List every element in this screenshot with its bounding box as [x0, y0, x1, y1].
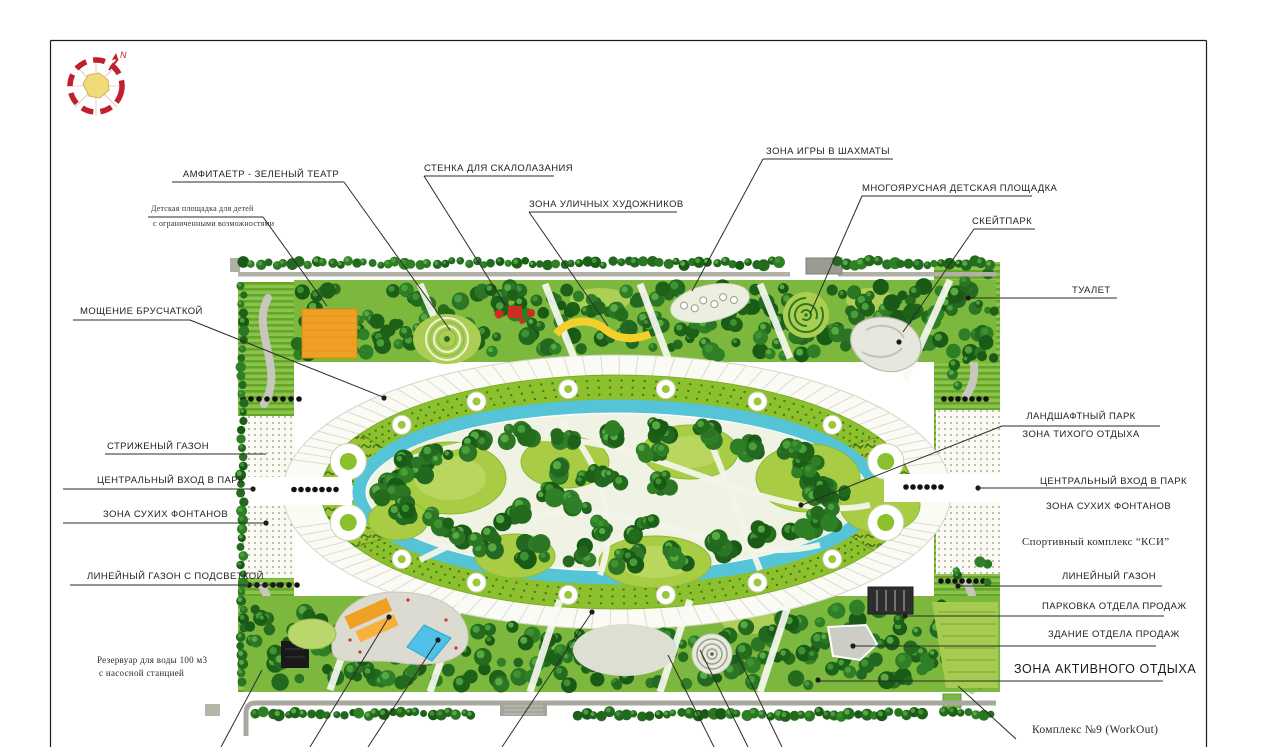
- label-trimmed-lawn: СТРИЖЕНЫЙ ГАЗОН: [107, 441, 209, 452]
- label-parking: ПАРКОВКА ОТДЕЛА ПРОДАЖ: [1042, 601, 1187, 612]
- label-paving: МОЩЕНИЕ БРУСЧАТКОЙ: [80, 306, 203, 317]
- label-reservoir-1: Резервуар для воды 100 м3: [97, 655, 207, 665]
- label-amphitheater: АМФИТАЕТР - ЗЕЛЕНЫЙ ТЕАТР: [178, 169, 344, 180]
- label-sport-complex: Спортивный комплекс “КСИ”: [1022, 536, 1170, 548]
- label-central-entrance-left: ЦЕНТРАЛЬНЫЙ ВХОД В ПАРК: [97, 475, 244, 486]
- label-active-recreation: ЗОНА АКТИВНОГО ОТДЫХА: [1014, 664, 1196, 675]
- label-landscape-park-2: ЗОНА ТИХОГО ОТДЫХА: [1001, 429, 1161, 440]
- label-toilet: ТУАЛЕТ: [1072, 285, 1111, 296]
- label-central-entrance-right: ЦЕНТРАЛЬНЫЙ ВХОД В ПАРК: [1040, 476, 1187, 487]
- label-linear-lawn-right: ЛИНЕЙНЫЙ ГАЗОН: [1062, 571, 1156, 582]
- green-theater-amphitheater: [413, 314, 481, 364]
- label-workout: Комплекс №9 (WorkOut): [1032, 724, 1158, 736]
- paved-square-orange: [302, 309, 357, 358]
- label-multilevel-playground: МНОГОЯРУСНАЯ ДЕТСКАЯ ПЛОЩАДКА: [862, 183, 1032, 194]
- label-street-artists: ЗОНА УЛИЧНЫХ ХУДОЖНИКОВ: [529, 199, 677, 210]
- label-linear-lawn-lit: ЛИНЕЙНЫЙ ГАЗОН С ПОДСВЕТКОЙ: [87, 571, 264, 582]
- label-reservoir-2: с насосной станцией: [99, 668, 184, 678]
- multilevel-playground-feature: [783, 292, 829, 338]
- compass-north-label: N: [120, 50, 127, 60]
- label-dry-fountains-left: ЗОНА СУХИХ ФОНТАНОВ: [103, 509, 228, 520]
- label-disabled-playground-2: с ограниченными возможностями: [153, 219, 274, 228]
- label-landscape-park-1: ЛАНДШАФТНЫЙ ПАРК: [1001, 411, 1161, 422]
- label-dry-fountains-right: ЗОНА СУХИХ ФОНТАНОВ: [1046, 501, 1171, 512]
- masterplan-page: N АМФИТАЕТР - ЗЕЛЕНЫЙ ТЕАТР Детская площ…: [0, 0, 1280, 747]
- label-climbing-wall: СТЕНКА ДЛЯ СКАЛОЛАЗАНИЯ: [424, 163, 554, 174]
- label-sales-building: ЗДАНИЕ ОТДЕЛА ПРОДАЖ: [1048, 629, 1180, 640]
- label-skatepark: СКЕЙТПАРК: [972, 216, 1032, 227]
- north-arrow-icon: [112, 53, 118, 60]
- label-chess: ЗОНА ИГРЫ В ШАХМАТЫ: [763, 146, 893, 157]
- label-disabled-playground-1: Детская площадка для детей: [151, 204, 254, 213]
- compass-rose: N: [65, 50, 127, 117]
- sales-office-parking: [868, 587, 913, 614]
